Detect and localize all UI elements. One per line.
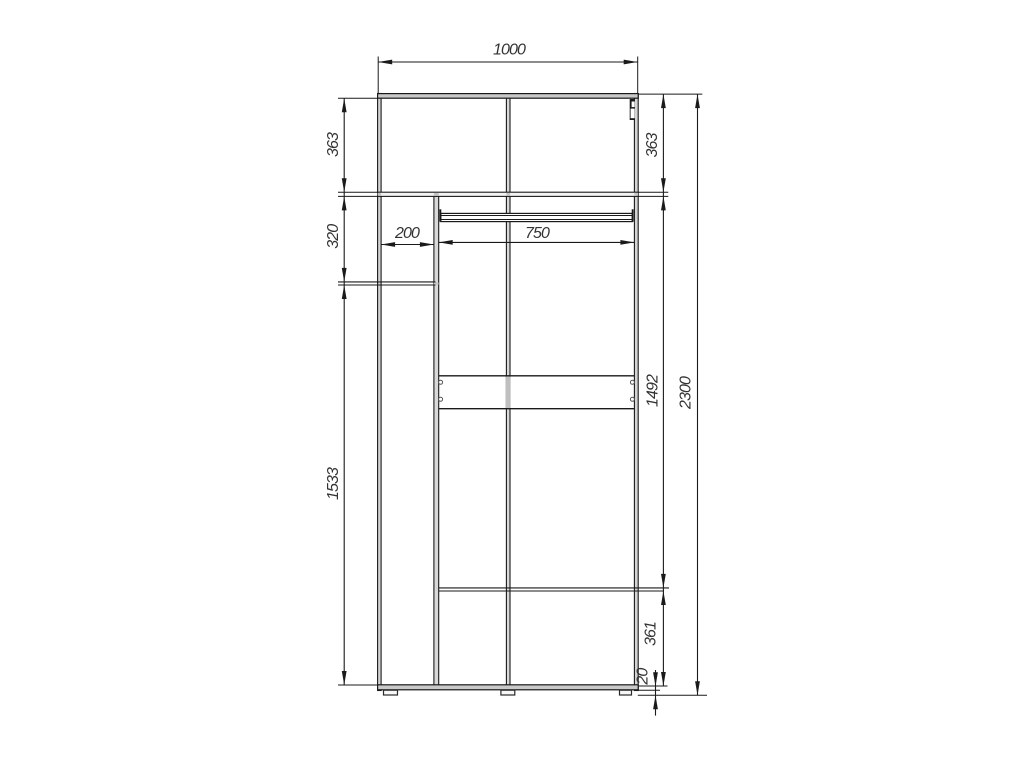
svg-text:20: 20 <box>635 668 652 686</box>
svg-text:320: 320 <box>325 224 342 249</box>
svg-text:200: 200 <box>394 225 420 242</box>
svg-text:363: 363 <box>644 133 661 158</box>
svg-text:361: 361 <box>643 622 660 646</box>
svg-text:1533: 1533 <box>325 467 342 500</box>
svg-text:1000: 1000 <box>493 42 526 59</box>
svg-text:363: 363 <box>325 132 342 157</box>
svg-text:2300: 2300 <box>678 376 695 410</box>
svg-text:1492: 1492 <box>645 374 662 407</box>
svg-text:750: 750 <box>525 225 550 242</box>
